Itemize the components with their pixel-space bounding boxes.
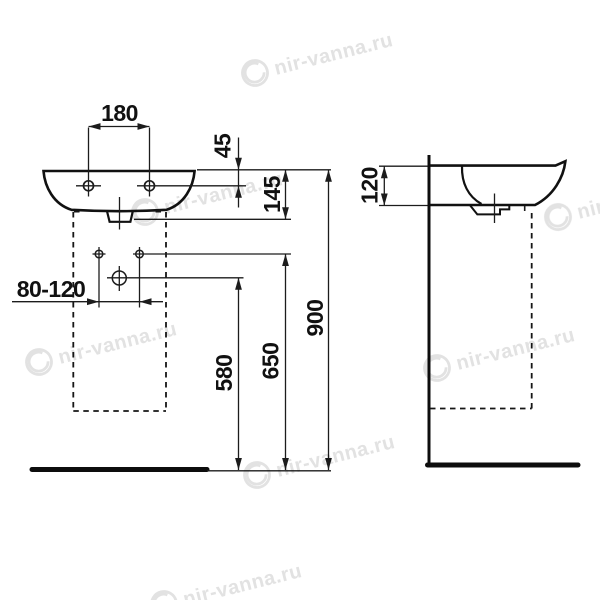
dim-label-650: 650 <box>258 343 284 380</box>
dimension-80-120: 80-120 <box>12 276 163 305</box>
dimension-650: 650 <box>258 254 289 470</box>
watermark: nir-vanna.ru <box>242 429 398 491</box>
watermark: nir-vanna.ru <box>149 558 305 600</box>
watermark-logo-icon <box>543 202 573 232</box>
watermark: nir-vanna.ru <box>422 322 578 384</box>
dim-label-45: 45 <box>210 133 236 158</box>
dim-label-120: 120 <box>357 167 383 204</box>
drain-trap-outline <box>470 205 509 214</box>
bowl-inner-curve <box>462 166 482 204</box>
drain-center-symbol <box>107 266 244 291</box>
watermark: nir-vanna.ru <box>24 316 180 378</box>
svg-text:nir-vanna.ru: nir-vanna.ru <box>272 29 395 80</box>
svg-text:nir-vanna.ru: nir-vanna.ru <box>575 173 600 224</box>
dimensions-front: 180 45 145 80-120 <box>12 100 332 470</box>
dimension-120: 120 <box>357 166 428 205</box>
dim-label-580: 580 <box>211 355 237 392</box>
fixing-hole-symbol-left <box>93 247 106 308</box>
washbasin-dimension-diagram: 180 45 145 80-120 <box>0 0 600 600</box>
basin-side-outline <box>430 161 565 205</box>
svg-text:nir-vanna.ru: nir-vanna.ru <box>274 431 397 482</box>
watermark-logo-icon <box>422 353 452 383</box>
svg-text:nir-vanna.ru: nir-vanna.ru <box>454 324 577 375</box>
side-view: 120 <box>357 155 579 467</box>
watermark-logo-icon <box>149 589 179 600</box>
watermark: nir-vanna.ru <box>240 27 396 89</box>
dim-label-180: 180 <box>101 100 138 126</box>
dimension-580: 580 <box>211 278 242 470</box>
dim-label-900: 900 <box>302 300 328 337</box>
dimension-900: 900 <box>302 170 332 470</box>
watermark-logo-icon <box>240 58 270 88</box>
technical-drawing-canvas: 180 45 145 80-120 <box>0 0 600 600</box>
dim-label-80-120: 80-120 <box>17 276 86 302</box>
dimension-180: 180 <box>89 100 150 130</box>
svg-text:nir-vanna.ru: nir-vanna.ru <box>181 560 304 600</box>
watermark-logo-icon <box>242 460 272 490</box>
watermark-logo-icon <box>24 347 54 377</box>
watermark: nir-vanna.ru <box>543 171 600 233</box>
svg-text:nir-vanna.ru: nir-vanna.ru <box>56 318 179 369</box>
hidden-pedestal-outline-front <box>73 212 166 411</box>
tap-hole-symbol-left <box>76 128 101 197</box>
